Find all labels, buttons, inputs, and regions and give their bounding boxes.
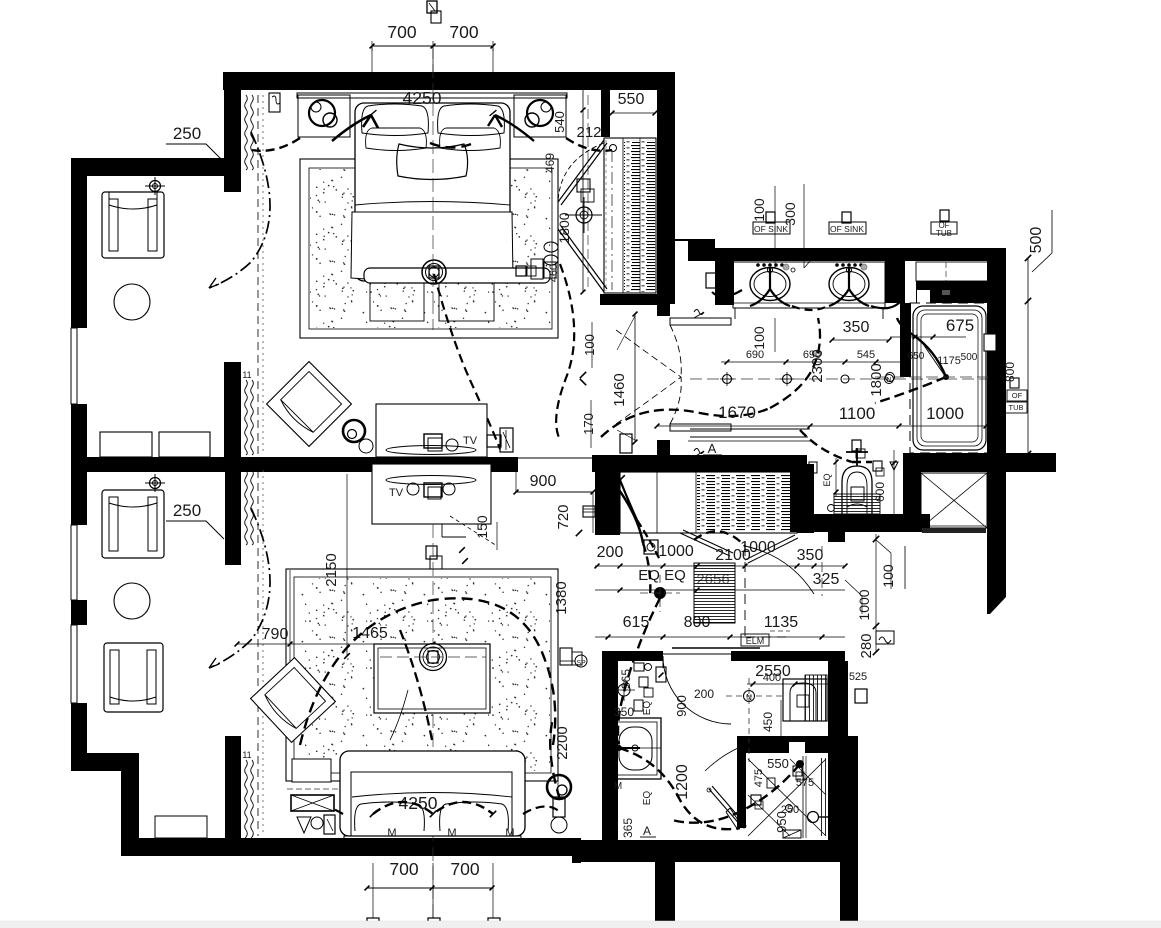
svg-text:2200: 2200 <box>554 726 571 759</box>
svg-text:150: 150 <box>474 515 490 539</box>
svg-text:1000: 1000 <box>856 589 872 620</box>
svg-text:4250: 4250 <box>403 88 442 108</box>
svg-text:EQ: EQ <box>822 473 832 486</box>
svg-text:1000: 1000 <box>740 539 776 556</box>
svg-text:550: 550 <box>618 91 645 108</box>
svg-text:OF SINK: OF SINK <box>830 224 864 234</box>
svg-text:575: 575 <box>796 777 814 789</box>
svg-text:A: A <box>708 441 717 456</box>
svg-text:TUB: TUB <box>936 229 952 238</box>
svg-text:500: 500 <box>961 352 978 363</box>
svg-text:700: 700 <box>450 859 479 879</box>
svg-text:SP: SP <box>576 660 586 667</box>
svg-text:500: 500 <box>1028 227 1045 254</box>
svg-text:1000: 1000 <box>658 543 694 560</box>
svg-text:M: M <box>614 781 622 792</box>
svg-text:475: 475 <box>753 769 765 787</box>
svg-text:460: 460 <box>548 264 560 282</box>
svg-text:350: 350 <box>797 547 824 564</box>
svg-text:100: 100 <box>582 334 597 356</box>
svg-text:800: 800 <box>1003 362 1017 382</box>
svg-text:350: 350 <box>843 319 870 336</box>
svg-text:280: 280 <box>858 633 875 658</box>
svg-text:100: 100 <box>751 198 767 222</box>
svg-text:100: 100 <box>880 564 896 588</box>
svg-text:EQ: EQ <box>642 701 653 716</box>
svg-text:TUB: TUB <box>1009 403 1024 412</box>
svg-text:790: 790 <box>262 626 289 643</box>
svg-text:250: 250 <box>173 124 201 143</box>
svg-text:250: 250 <box>173 501 201 520</box>
svg-text:170: 170 <box>581 413 596 435</box>
svg-text:675: 675 <box>946 316 974 335</box>
svg-text:1380: 1380 <box>553 581 570 614</box>
svg-text:OF: OF <box>1012 391 1023 400</box>
svg-text:469: 469 <box>543 153 557 173</box>
svg-text:1000: 1000 <box>926 404 964 423</box>
svg-text:M: M <box>505 827 514 839</box>
svg-text:720: 720 <box>555 504 572 529</box>
svg-text:200: 200 <box>694 687 714 701</box>
svg-text:11: 11 <box>242 750 251 760</box>
svg-text:700: 700 <box>389 859 418 879</box>
svg-text:11: 11 <box>242 370 251 380</box>
svg-text:1135: 1135 <box>764 614 799 631</box>
svg-text:545: 545 <box>857 349 875 361</box>
svg-text:EQ EQ: EQ EQ <box>638 567 686 584</box>
svg-text:350: 350 <box>614 705 634 719</box>
svg-text:365: 365 <box>621 818 635 838</box>
svg-text:900: 900 <box>674 695 689 717</box>
svg-text:300: 300 <box>782 202 798 226</box>
svg-text:TV: TV <box>463 435 478 447</box>
svg-text:325: 325 <box>813 571 840 588</box>
svg-text:1100: 1100 <box>839 404 876 423</box>
svg-text:450: 450 <box>761 712 775 732</box>
svg-text:1670: 1670 <box>718 403 756 422</box>
svg-text:M: M <box>387 827 396 839</box>
svg-text:525: 525 <box>849 671 867 683</box>
svg-text:EQ: EQ <box>642 791 653 806</box>
svg-text:700: 700 <box>387 22 416 42</box>
svg-text:2300: 2300 <box>809 349 826 382</box>
svg-text:M: M <box>447 827 456 839</box>
svg-text:1800: 1800 <box>868 363 885 396</box>
svg-text:550: 550 <box>767 756 789 771</box>
svg-text:690: 690 <box>746 349 764 361</box>
svg-text:2150: 2150 <box>323 553 340 586</box>
svg-text:ELM: ELM <box>746 636 765 646</box>
svg-text:1800: 1800 <box>556 212 572 243</box>
svg-text:900: 900 <box>530 473 557 490</box>
svg-text:600: 600 <box>873 482 887 502</box>
svg-text:540: 540 <box>552 111 567 133</box>
svg-text:A: A <box>643 824 651 838</box>
svg-text:700: 700 <box>449 22 478 42</box>
svg-text:400: 400 <box>763 672 781 684</box>
svg-text:365: 365 <box>619 669 633 689</box>
svg-text:212: 212 <box>576 124 601 141</box>
svg-text:100: 100 <box>751 326 767 350</box>
svg-text:1460: 1460 <box>611 373 628 406</box>
svg-text:TV: TV <box>389 487 404 499</box>
svg-text:200: 200 <box>597 544 624 561</box>
